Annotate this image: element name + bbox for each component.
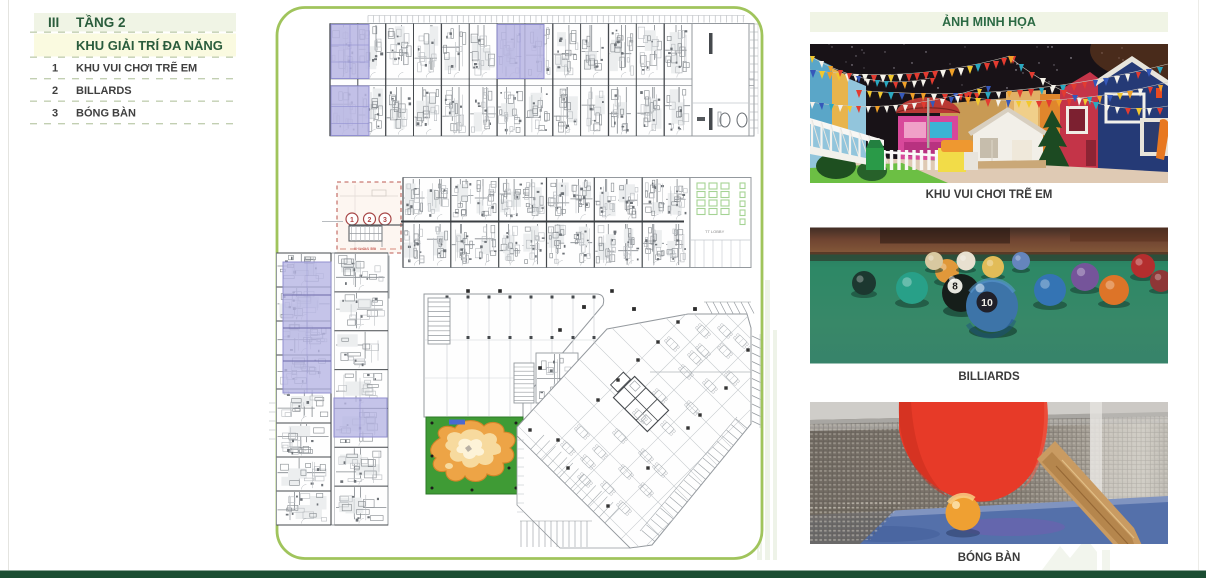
svg-text:BILLIARDS: BILLIARDS	[958, 371, 1020, 383]
svg-text:BILLARDS: BILLARDS	[76, 85, 132, 97]
svg-text:2: 2	[368, 217, 372, 224]
svg-text:3: 3	[383, 217, 387, 224]
svg-text:3: 3	[52, 108, 58, 120]
svg-text:BÓNG BÀN: BÓNG BÀN	[958, 551, 1021, 564]
svg-text:TT LOBBY: TT LOBBY	[705, 229, 725, 234]
svg-text:8: 8	[952, 282, 958, 293]
svg-text:10: 10	[981, 297, 993, 309]
svg-text:2: 2	[52, 85, 58, 97]
svg-text:KHU VUI CHƠI TRẼ EM: KHU VUI CHƠI TRẼ EM	[926, 188, 1053, 201]
svg-text:1: 1	[52, 63, 58, 75]
svg-text:1: 1	[350, 217, 354, 224]
svg-text:ẢNH MINH HỌA: ẢNH MINH HỌA	[942, 14, 1036, 29]
svg-text:BÓNG BÀN: BÓNG BÀN	[76, 107, 136, 120]
svg-text:III: III	[48, 15, 59, 30]
svg-text:TẦNG 2: TẦNG 2	[76, 15, 126, 30]
svg-text:KHU GIẢI TRÍ ĐA NĂNG: KHU GIẢI TRÍ ĐA NĂNG	[76, 38, 223, 53]
svg-text:KHU VUI CHƠI TRẼ EM: KHU VUI CHƠI TRẼ EM	[76, 62, 197, 75]
